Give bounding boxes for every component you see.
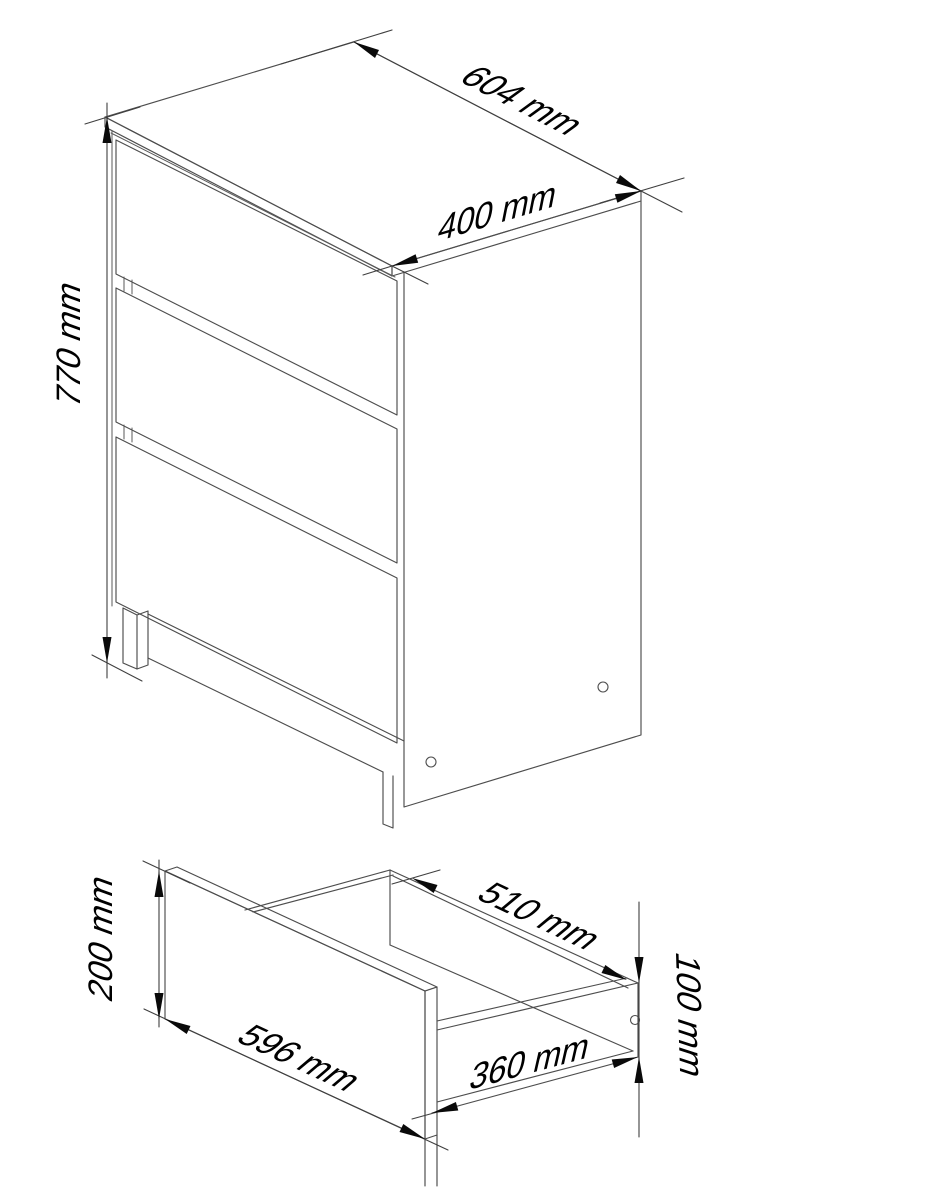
drawer-front-1 [116,140,397,415]
arrowhead-100-bottom [635,1057,644,1083]
arrowhead-604-left [354,42,379,58]
front-left-leg [123,608,148,669]
side-panel-hole-front [426,757,436,767]
top-panel-face [105,42,641,266]
dimension-depth-400: 400 mm [363,172,641,284]
front-panel-top-edge [165,867,437,991]
drawing-canvas: 604 mm 400 mm 770 mm [0,0,937,1200]
dim-label-400: 400 mm [435,172,561,250]
arrowhead-604-right [616,175,641,191]
dimension-height-770: 770 mm [50,103,142,681]
chest-isometric-view: 604 mm 400 mm 770 mm [50,30,684,828]
drawer-gap-notches [124,277,132,442]
side-panel-outline [404,201,641,807]
arrowhead-400-back [615,191,641,203]
drawer-front-3 [116,437,397,743]
right-wall-top-edges [437,978,638,1030]
dim-label-360: 360 mm [466,1024,594,1099]
front-panel-face [165,871,425,1139]
arrowhead-400-front [392,254,418,266]
left-wall-top-edges [245,870,393,912]
arrowhead-596-right [400,1124,426,1139]
dimension-side-height-100: 100 mm [635,902,711,1137]
side-panel-hole-back [598,682,608,692]
chest-base [123,608,404,828]
drawer-isometric-view: 596 mm 200 mm 510 mm 360 mm [82,860,711,1186]
technical-drawing: 604 mm 400 mm 770 mm [0,0,937,1200]
chest-top-panel [105,42,641,276]
dimension-width-604: 604 mm [281,30,684,212]
arrowhead-200-top [155,871,164,897]
dim-line-604 [354,42,641,191]
floor-back-edge [390,945,633,1051]
dimension-front-height-200: 200 mm [82,860,190,1027]
arrowhead-596-left [165,1019,191,1034]
drawer-front-2 [116,288,397,563]
arrowhead-360-right [612,1057,638,1068]
chest-side-panel [404,201,641,807]
dimension-front-width-596: 596 mm [144,1009,448,1186]
front-panel-end-edge [425,987,437,1139]
arrowhead-100-top [635,957,644,983]
dim-ext-604-left [281,30,392,64]
dim-label-604: 604 mm [450,60,594,141]
chest-drawer-fronts [111,131,397,743]
top-panel-front-edge [105,117,392,276]
carcass-left-edge [111,131,395,606]
dim-label-770: 770 mm [50,276,88,413]
arrowhead-360-left [432,1102,458,1113]
drawer-front-panel [165,867,437,1139]
arrowhead-770-bottom [103,637,112,663]
front-right-leg [383,772,393,828]
dim-label-200: 200 mm [82,870,120,1007]
dim-label-100: 100 mm [668,948,711,1083]
dim-ext-200-top [143,861,190,883]
dim-ext-604-right [600,178,684,212]
